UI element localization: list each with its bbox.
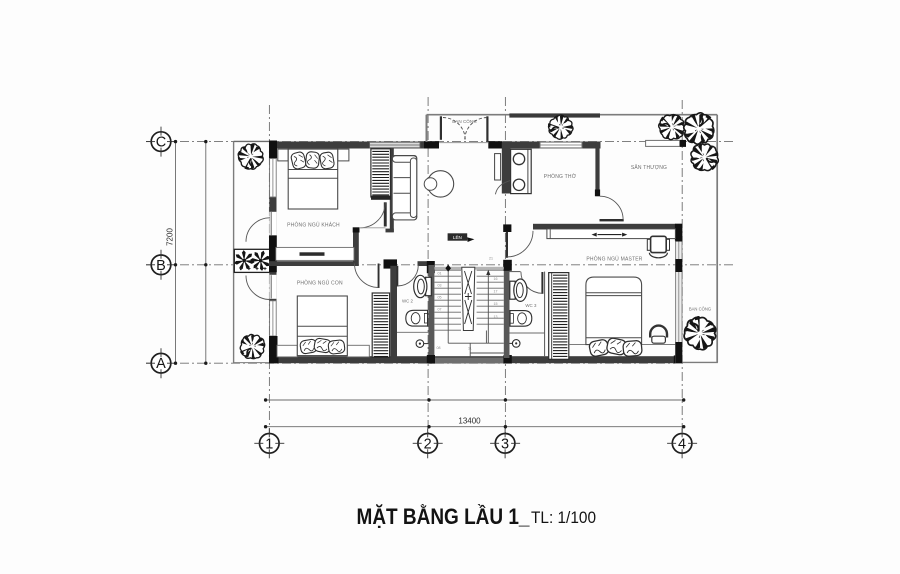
- svg-text:13400: 13400: [458, 417, 481, 426]
- svg-text:A: A: [156, 356, 166, 372]
- svg-text:TL: 1/100: TL: 1/100: [531, 509, 596, 527]
- svg-text:07: 07: [438, 308, 442, 312]
- svg-text:21: 21: [489, 257, 493, 261]
- svg-text:17: 17: [494, 290, 498, 294]
- svg-text:01: 01: [438, 272, 442, 276]
- svg-text:11: 11: [468, 347, 472, 351]
- svg-text:PHÒNG NGỦ CON: PHÒNG NGỦ CON: [297, 280, 343, 287]
- svg-text:08: 08: [437, 346, 441, 350]
- svg-text:BAN CÔNG: BAN CÔNG: [452, 118, 477, 124]
- svg-text:C: C: [156, 135, 166, 151]
- svg-text:WC 3: WC 3: [525, 303, 537, 308]
- svg-text:WC 2: WC 2: [402, 298, 414, 303]
- svg-text:B: B: [156, 258, 166, 274]
- svg-text:4: 4: [678, 436, 686, 452]
- svg-text:3: 3: [501, 436, 509, 452]
- svg-text:PHÒNG THỜ: PHÒNG THỜ: [544, 173, 577, 180]
- svg-text:SÂN THƯỢNG: SÂN THƯỢNG: [631, 164, 667, 171]
- svg-text:MẶT BẰNG LẦU 1_: MẶT BẰNG LẦU 1_: [357, 504, 530, 529]
- svg-text:PHÒNG NGỦ MASTER: PHÒNG NGỦ MASTER: [586, 256, 642, 263]
- svg-text:2: 2: [424, 436, 432, 452]
- svg-text:7200: 7200: [166, 228, 175, 246]
- svg-text:BAN CÔNG: BAN CÔNG: [689, 307, 711, 312]
- svg-text:05: 05: [438, 296, 442, 300]
- svg-text:03: 03: [438, 284, 442, 288]
- svg-text:15: 15: [494, 302, 498, 306]
- svg-text:1: 1: [265, 436, 273, 452]
- svg-text:16: 16: [494, 277, 498, 281]
- svg-text:LÊN: LÊN: [453, 233, 462, 240]
- svg-text:PHÒNG NGỦ KHÁCH: PHÒNG NGỦ KHÁCH: [287, 222, 340, 229]
- svg-text:13: 13: [494, 315, 498, 319]
